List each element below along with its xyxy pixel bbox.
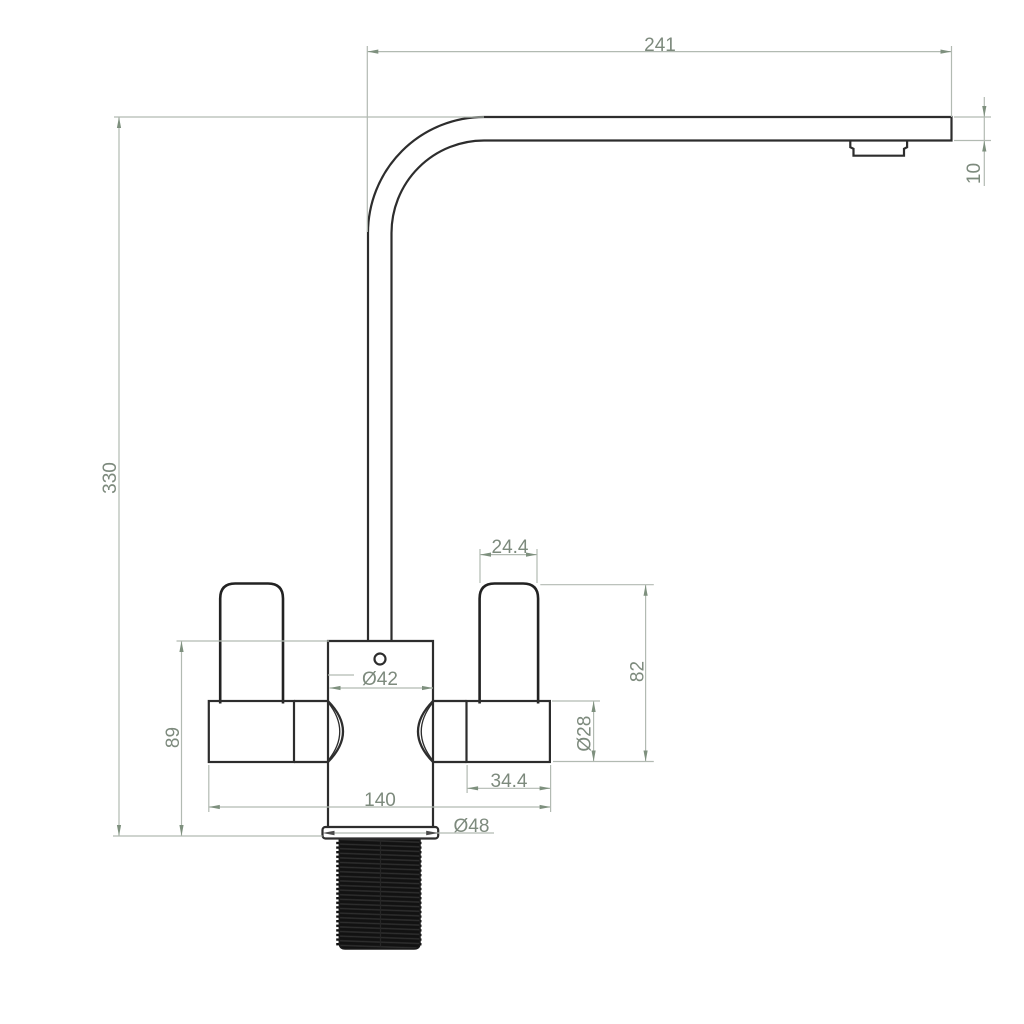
- svg-text:241: 241: [644, 35, 676, 56]
- svg-text:Ø48: Ø48: [454, 816, 490, 837]
- svg-text:Ø28: Ø28: [575, 716, 596, 752]
- svg-text:330: 330: [100, 462, 121, 494]
- svg-text:89: 89: [163, 727, 184, 748]
- svg-text:Ø42: Ø42: [362, 669, 398, 690]
- svg-text:140: 140: [364, 790, 396, 811]
- svg-text:10: 10: [964, 163, 985, 184]
- svg-text:34.4: 34.4: [491, 771, 528, 792]
- svg-text:82: 82: [628, 661, 649, 682]
- svg-text:24.4: 24.4: [492, 537, 529, 558]
